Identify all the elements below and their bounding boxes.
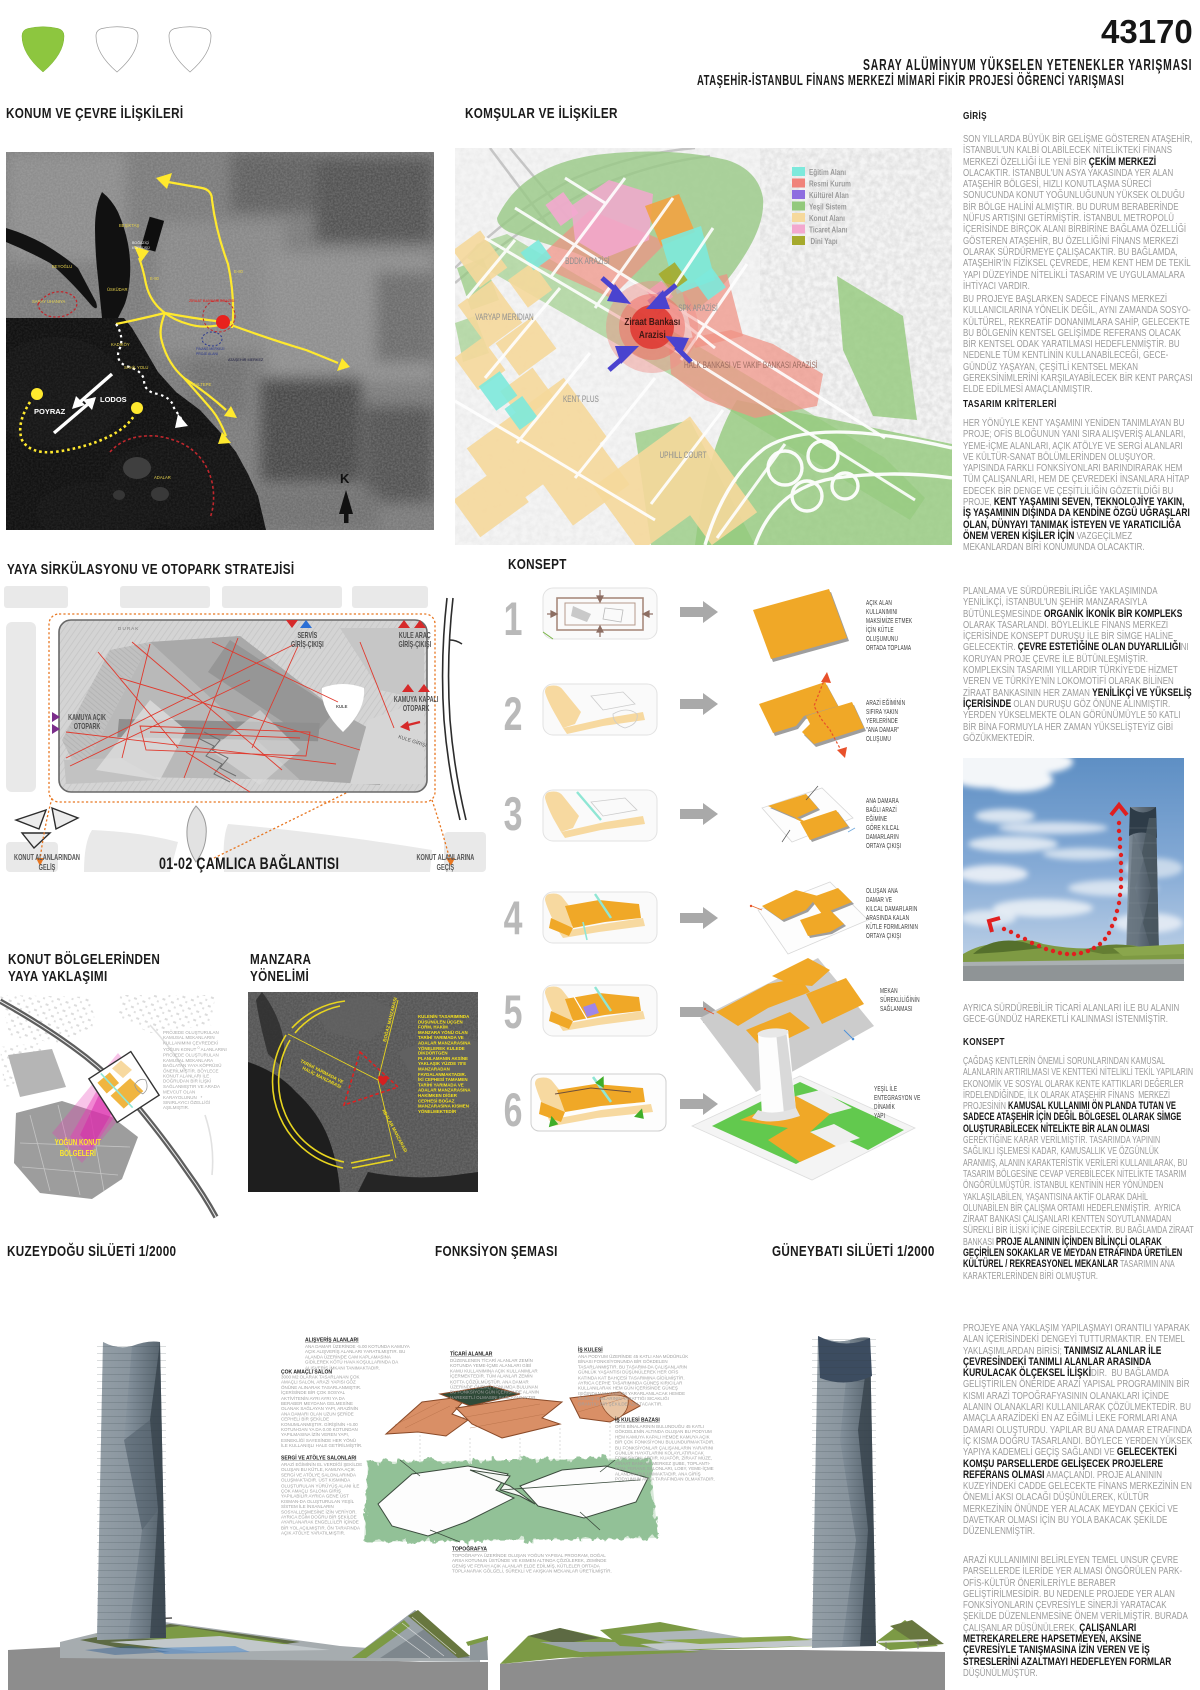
svg-text:2: 2 [504, 688, 523, 741]
svg-text:LODOS: LODOS [100, 395, 127, 404]
svg-text:Konut Alanı: Konut Alanı [809, 213, 845, 223]
svg-text:SAHİL YOLU: SAHİL YOLU [124, 365, 148, 370]
svg-text:3: 3 [504, 788, 523, 841]
svg-text:ZİRAAT BANKASI ARAZİSİ: ZİRAAT BANKASI ARAZİSİ [189, 299, 235, 303]
svg-text:5: 5 [504, 986, 523, 1039]
svg-text:KULE ARAÇ: KULE ARAÇ [399, 632, 431, 640]
svg-text:Eğitim Alanı: Eğitim Alanı [809, 167, 846, 177]
svg-text:MALTEPE: MALTEPE [192, 382, 211, 387]
svg-text:OTOPARK: OTOPARK [74, 723, 101, 731]
svg-text:1: 1 [504, 593, 523, 646]
svg-text:Arazisi: Arazisi [639, 328, 666, 340]
svg-text:Ticaret Alanı: Ticaret Alanı [809, 225, 847, 235]
svg-text:Ziraat Bankası: Ziraat Bankası [624, 315, 680, 327]
svg-text:PROJE ALANI: PROJE ALANI [196, 352, 218, 356]
svg-text:E-80: E-80 [234, 269, 244, 274]
svg-text:KULE: KULE [336, 704, 348, 709]
svg-text:POYRAZ: POYRAZ [34, 407, 66, 416]
svg-text:HALK BANKASI VE VAKIF BANKASI: HALK BANKASI VE VAKIF BANKASI ARAZİSİ [684, 360, 818, 370]
svg-text:Yeşil Sistem: Yeşil Sistem [809, 202, 847, 212]
svg-text:YOĞUN KONUT: YOĞUN KONUT [55, 1137, 102, 1147]
svg-text:FİNANS MERKEZİ: FİNANS MERKEZİ [196, 346, 225, 351]
svg-text:K: K [340, 471, 350, 486]
svg-text:ADALAR: ADALAR [154, 475, 171, 480]
svg-text:KÖPRÜSÜ: KÖPRÜSÜ [132, 246, 150, 250]
svg-text:UPHILL COURT: UPHILL COURT [659, 450, 706, 460]
svg-text:KADIKÖY: KADIKÖY [111, 342, 130, 347]
svg-text:VARYAP MERIDIAN: VARYAP MERIDIAN [475, 312, 534, 322]
svg-text:ATAŞEHİR MERKEZ: ATAŞEHİR MERKEZ [228, 357, 264, 362]
svg-text:KAMUYA AÇIK: KAMUYA AÇIK [68, 714, 106, 722]
svg-text:OTOPARK: OTOPARK [403, 705, 430, 713]
svg-text:D U R A K: D U R A K [118, 626, 138, 631]
svg-text:Kültürel Alan: Kültürel Alan [809, 190, 849, 200]
svg-text:SPK ARAZİSİ: SPK ARAZİSİ [678, 303, 718, 313]
svg-text:Dini Yapı: Dini Yapı [811, 236, 838, 246]
svg-text:KAMUYA KAPALI: KAMUYA KAPALI [394, 696, 439, 704]
svg-text:GİRİŞ-ÇIKIŞI: GİRİŞ-ÇIKIŞI [399, 639, 432, 650]
svg-text:BDDK ARAZİSİ: BDDK ARAZİSİ [565, 256, 610, 266]
svg-text:BOĞAZİÇİ: BOĞAZİÇİ [132, 240, 149, 245]
svg-text:E-80: E-80 [150, 276, 160, 281]
svg-text:KENT PLUS: KENT PLUS [563, 394, 599, 404]
svg-text:4: 4 [504, 892, 523, 945]
svg-text:GİRİŞ-ÇIKIŞI: GİRİŞ-ÇIKIŞI [291, 639, 324, 650]
svg-text:ÜSKÜDAR: ÜSKÜDAR [107, 287, 127, 292]
svg-text:SERVİS: SERVİS [297, 630, 317, 641]
svg-text:BEYOĞLU: BEYOĞLU [52, 264, 72, 269]
svg-text:SARAY UHANIYA: SARAY UHANIYA [32, 299, 65, 304]
svg-text:BEŞİKTAŞ: BEŞİKTAŞ [119, 223, 139, 228]
svg-text:BÖLGELERİ: BÖLGELERİ [60, 1148, 96, 1158]
svg-text:6: 6 [504, 1084, 523, 1137]
svg-text:Resmi Kurum: Resmi Kurum [809, 179, 851, 189]
